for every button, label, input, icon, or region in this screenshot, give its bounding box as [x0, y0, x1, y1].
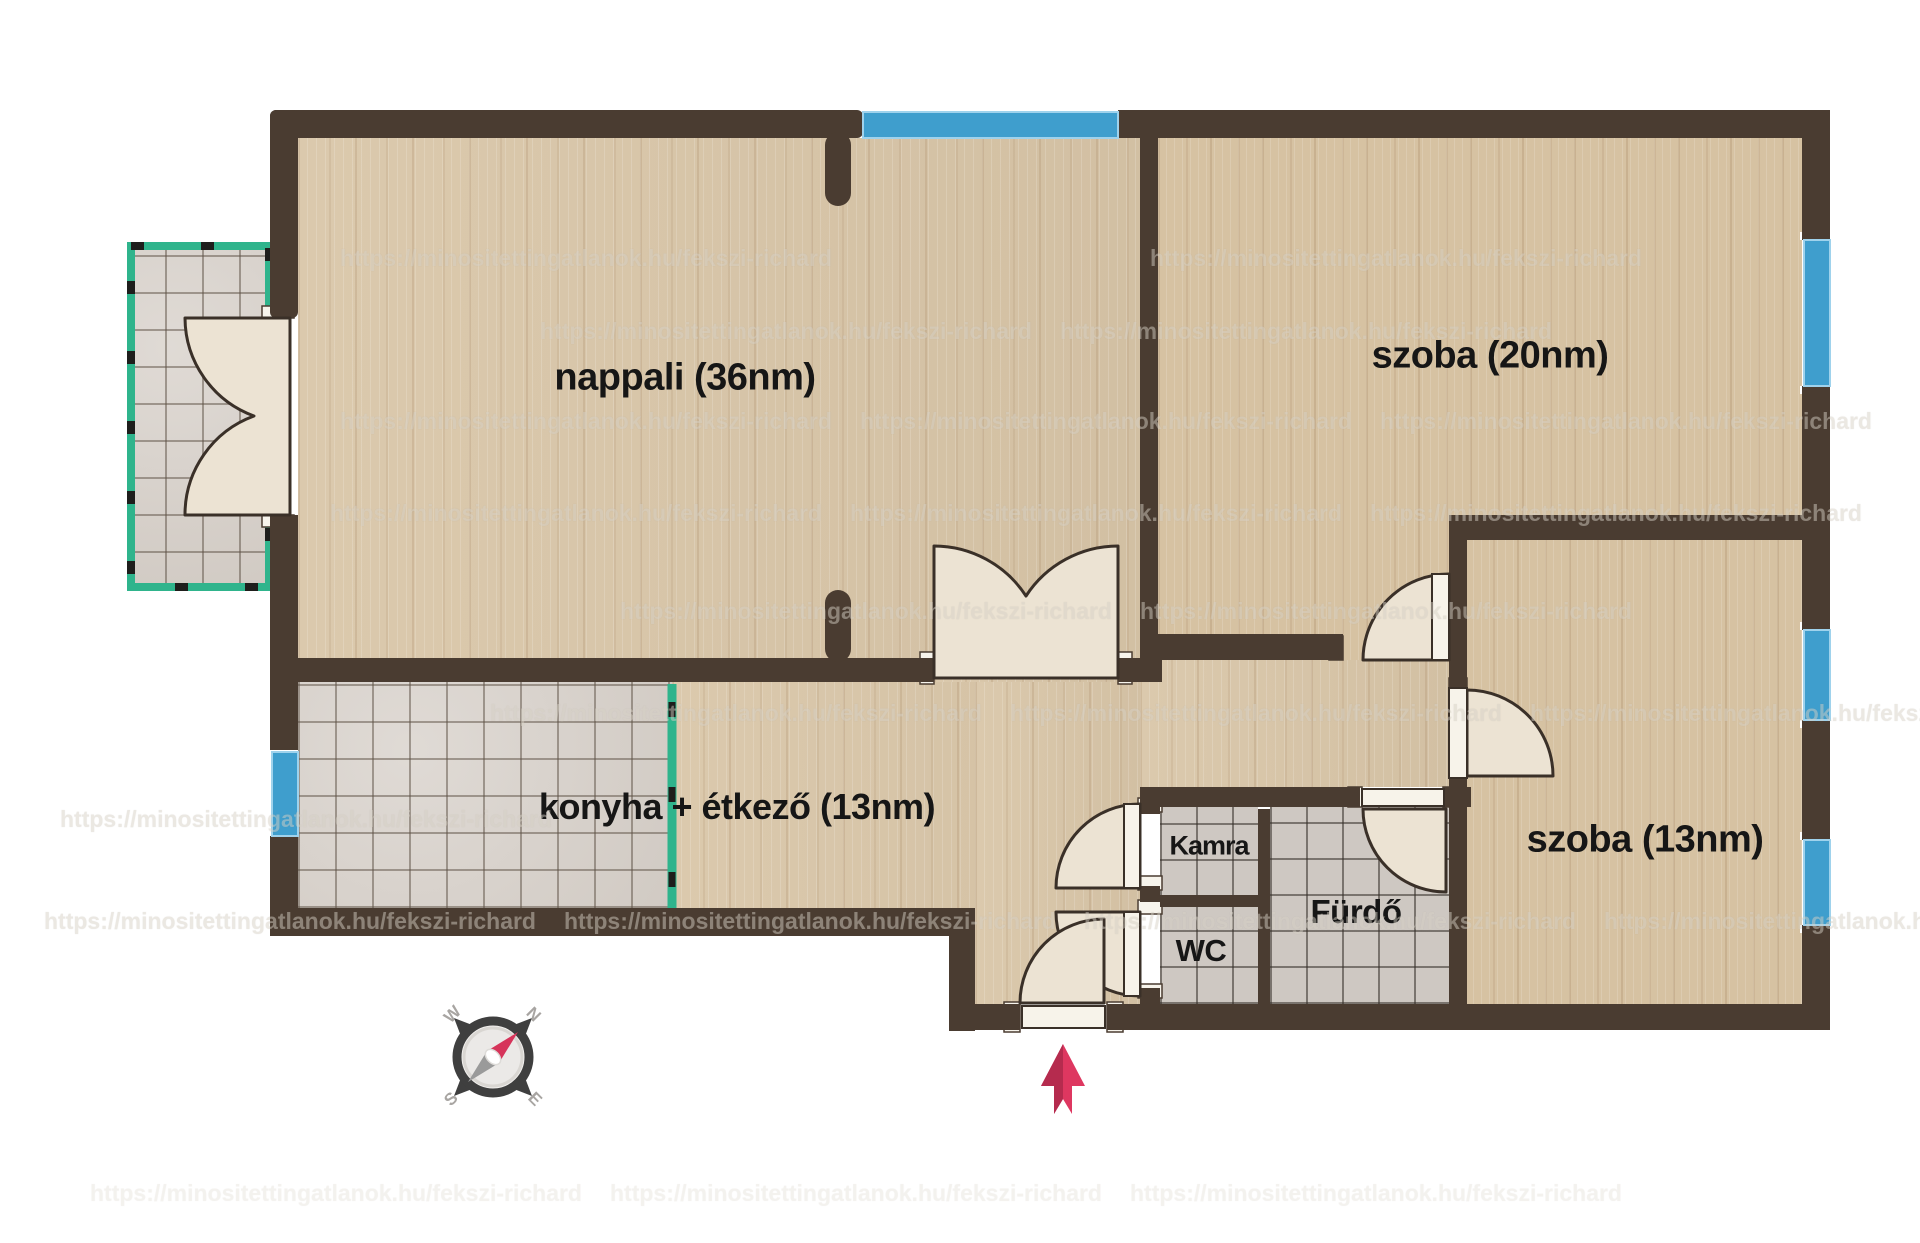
room-label-kamra: Kamra	[1169, 831, 1248, 862]
window-szoba13-lower	[1804, 840, 1830, 925]
door-nappali-double	[934, 546, 1118, 678]
room-label-wc: WC	[1176, 933, 1227, 969]
door-leaf-entrance	[1022, 1006, 1105, 1028]
window-konyha	[272, 752, 298, 836]
door-szoba13	[1467, 690, 1553, 776]
door-leaf-kamra	[1124, 804, 1140, 888]
floorplan-structure-svg: N W S E	[0, 0, 1920, 1243]
room-label-furdo: Fürdő	[1311, 893, 1402, 931]
room-label-szoba13: szoba (13nm)	[1527, 819, 1764, 862]
window-szoba13-upper	[1804, 630, 1830, 720]
room-label-szoba20: szoba (20nm)	[1372, 335, 1609, 378]
door-leaf-wc	[1124, 912, 1140, 996]
door-leaf-szoba20	[1432, 574, 1449, 660]
entrance-arrow-icon	[1041, 1044, 1085, 1114]
window-top	[863, 112, 1118, 138]
window-szoba20	[1804, 240, 1830, 386]
balcony-outline	[131, 246, 269, 587]
door-entrance	[1020, 919, 1104, 1003]
room-label-konyha: konyha + étkező (13nm)	[539, 786, 935, 828]
door-balcony	[185, 318, 290, 515]
room-label-nappali: nappali (36nm)	[554, 357, 815, 400]
door-furdo	[1363, 809, 1446, 892]
compass-icon: N W S E	[440, 1001, 546, 1109]
door-leaf-szoba13	[1449, 688, 1467, 778]
floorplan-canvas: N W S E nappali (36nm) szoba (20nm) szob…	[0, 0, 1920, 1243]
door-leaf-furdo	[1362, 789, 1444, 806]
